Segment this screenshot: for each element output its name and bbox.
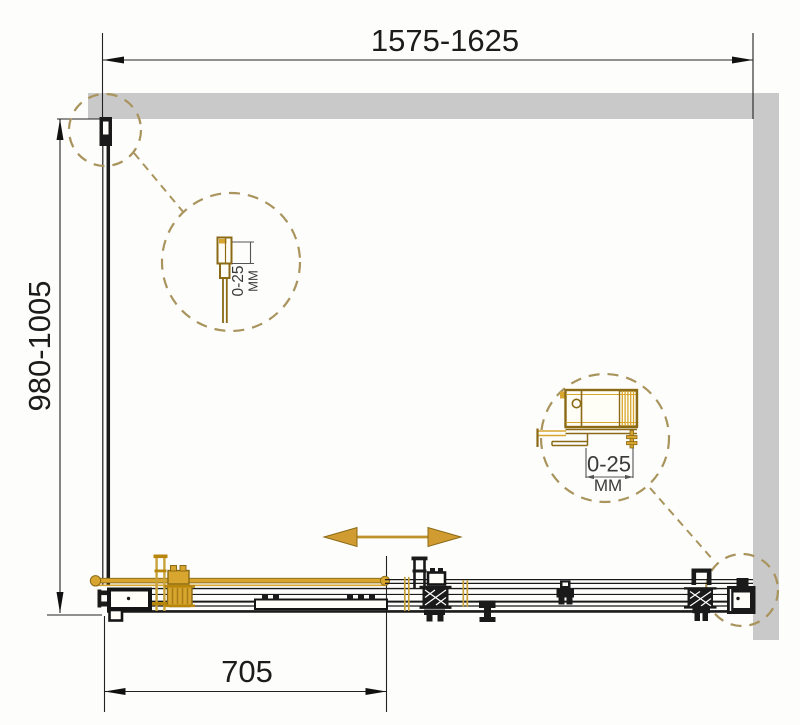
screw-bar-2: [627, 442, 638, 445]
gold-rail-cap-left: [90, 576, 100, 586]
width-range-label: 1575-1625: [371, 23, 519, 58]
carriage-post-left: [692, 569, 697, 586]
dim-arrow-left-icon: [103, 57, 124, 64]
arrow-head-left: [324, 528, 357, 547]
carriage-notch-2: [438, 568, 443, 573]
left-profile-foot: [110, 610, 123, 621]
carriage-body: [428, 573, 445, 585]
bracket-foot-2: [703, 613, 709, 621]
screw-bar-1: [627, 436, 638, 439]
dim-arrow-right-icon: [366, 688, 387, 695]
carriage-post-rung: [155, 570, 167, 573]
roller-flange-top: [684, 587, 717, 589]
right-roller-carriage: [684, 569, 717, 622]
profile-slot: [734, 593, 751, 609]
carriage-notch-1: [430, 568, 435, 573]
carriage-post-right: [707, 569, 712, 586]
detail-1-wall-profile: 0-25 ММ: [162, 193, 300, 331]
rail-stub-lines: [538, 431, 567, 436]
dim-arrow-right-icon: [732, 57, 753, 64]
side-glass-panel: [100, 117, 113, 586]
detail-callouts: [69, 94, 778, 626]
guide-tab: [273, 595, 279, 600]
clip-body: [557, 588, 575, 598]
bracket-stem: [484, 608, 491, 618]
guide-tab: [358, 595, 364, 600]
roller-flange-top: [420, 586, 452, 588]
left-profile-pin: [127, 597, 130, 600]
callout-leader-top: [134, 153, 184, 213]
profile-hatch-block: [620, 391, 637, 426]
carriage-bracket: [424, 610, 445, 616]
adjust-range-label: 0-25: [587, 452, 631, 477]
depth-range-label: 980-1005: [22, 280, 57, 411]
profile-mid-block: [220, 264, 230, 279]
wall-right: [753, 93, 779, 640]
carriage-post-cap: [412, 557, 428, 561]
dim-arrow-down-icon: [57, 592, 64, 613]
adjust-unit-label: ММ: [246, 270, 261, 292]
clip-slot: [563, 583, 569, 587]
bracket-foot-1: [427, 615, 433, 622]
gold-top-rail: [94, 578, 385, 583]
door-offset-label: 705: [221, 654, 273, 689]
gold-roller: [168, 586, 193, 607]
step-profile-lines: [552, 430, 637, 446]
clip-foot-1: [559, 598, 565, 605]
guide-tab: [369, 595, 375, 600]
callout-leader-bottom: [650, 488, 714, 561]
carriage-notch-1: [171, 566, 177, 572]
profile-pin: [736, 597, 739, 600]
low-guide-bar: [255, 595, 387, 609]
clip-foot-2: [567, 598, 573, 605]
guide-tab: [347, 595, 353, 600]
bracket-body: [479, 601, 496, 609]
screw-hole-icon: [572, 399, 580, 407]
adjust-range-label: 0-25: [230, 265, 247, 296]
dim-arrow-up-icon: [57, 119, 64, 140]
bracket-tab-bottom: [99, 602, 107, 607]
profile-glass-stem: [223, 278, 227, 323]
wall-profile-slot: [103, 122, 109, 135]
arrow-head-right: [428, 528, 461, 547]
technical-drawing-page: 1575-1625 980-1005 705: [0, 0, 800, 725]
carriage-body: [168, 571, 189, 585]
shower-enclosure-plan-drawing: 1575-1625 980-1005 705: [0, 0, 800, 725]
carriage-post-cap: [154, 555, 168, 559]
profile-box: [566, 390, 638, 427]
carriage-bracket: [693, 608, 711, 613]
bottom-track: [90, 555, 755, 623]
bracket-tab-top: [99, 591, 107, 596]
dim-arrow-left-icon: [105, 688, 126, 695]
dimension-depth: 980-1005: [22, 119, 104, 615]
guide-bar: [255, 600, 387, 610]
guide-tab: [262, 595, 268, 600]
wall-top: [88, 93, 779, 119]
profile-tab: [737, 578, 749, 587]
walls: [88, 93, 779, 640]
detail-2-door-profile: 0-25 ММ: [538, 374, 670, 502]
bracket-foot-2: [438, 615, 444, 622]
slide-direction-arrow-icon: [324, 528, 461, 547]
roller-flange-top: [165, 585, 196, 588]
carriage-notch-2: [180, 566, 186, 572]
bracket-foot: [480, 617, 496, 622]
carriage-posts: [415, 558, 425, 589]
adjust-unit-label: ММ: [594, 476, 622, 495]
carriage-post-rung: [413, 570, 427, 573]
roller-flange-bottom: [420, 607, 452, 609]
roller-flange-bottom: [165, 605, 196, 608]
screw-stem: [630, 431, 634, 449]
left-wall-bracket: [98, 590, 108, 608]
adjust-dim-lines: [232, 242, 254, 264]
bracket-foot-1: [695, 613, 701, 621]
